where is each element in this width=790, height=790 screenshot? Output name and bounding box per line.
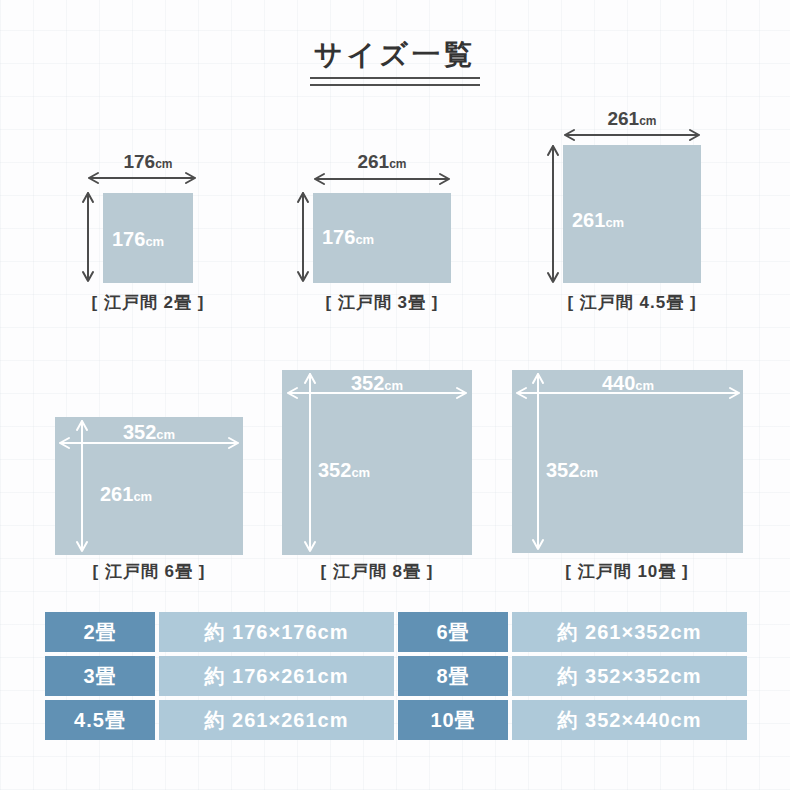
height-unit: cm [133, 489, 152, 504]
diagram-caption: [ 江戸間 8畳 ] [292, 560, 462, 583]
width-unit: cm [389, 157, 406, 171]
height-unit: cm [355, 232, 374, 247]
height-value: 261 [100, 483, 133, 505]
diagram-caption: [ 江戸間 6畳 ] [64, 560, 234, 583]
height-dimension-label: 176cm [112, 228, 164, 251]
table-row: 2畳 約 176×176cm 6畳 約 261×352cm [45, 612, 747, 652]
size-cell: 2畳 [45, 612, 155, 652]
width-unit: cm [635, 378, 654, 393]
width-dimension-label: 352cm [322, 372, 432, 395]
size-cell: 8畳 [398, 656, 508, 696]
vertical-arrow-icon [531, 372, 545, 551]
dimension-cell: 約 261×261cm [159, 700, 394, 740]
width-unit: cm [639, 114, 656, 128]
height-value: 176 [112, 228, 145, 250]
diagram-caption: [ 江戸間 3畳 ] [297, 291, 467, 314]
width-dimension-label: 352cm [94, 421, 204, 444]
size-cell: 10畳 [398, 700, 508, 740]
height-dimension-label: 261cm [100, 483, 152, 506]
page-title: サイズ一覧 [0, 36, 790, 74]
vertical-arrow-icon [546, 144, 560, 284]
diagram-caption: [ 江戸間 10畳 ] [542, 560, 712, 583]
size-chart-page: サイズ一覧 176cm 176cm [ 江戸間 2畳 ] 261cm 176cm… [0, 0, 790, 790]
vertical-arrow-icon [81, 191, 95, 283]
height-unit: cm [579, 465, 598, 480]
table-row: 4.5畳 約 261×261cm 10畳 約 352×440cm [45, 700, 747, 740]
diagram-caption: [ 江戸間 2畳 ] [63, 291, 233, 314]
horizontal-arrow-icon [563, 128, 701, 142]
height-unit: cm [351, 465, 370, 480]
width-unit: cm [156, 427, 175, 442]
table-row: 3畳 約 176×261cm 8畳 約 352×352cm [45, 656, 747, 696]
width-dimension-label: 261cm [327, 151, 437, 173]
title-double-underline [310, 77, 480, 86]
height-unit: cm [145, 234, 164, 249]
width-dimension-label: 176cm [93, 151, 203, 173]
size-cell: 6畳 [398, 612, 508, 652]
width-dimension-label: 261cm [577, 108, 687, 130]
width-value: 352 [123, 421, 156, 443]
dimension-cell: 約 352×440cm [512, 700, 747, 740]
width-unit: cm [384, 378, 403, 393]
horizontal-arrow-icon [87, 171, 197, 185]
width-value: 261 [357, 151, 389, 172]
width-value: 176 [123, 151, 155, 172]
dimension-cell: 約 352×352cm [512, 656, 747, 696]
height-dimension-label: 261cm [572, 209, 624, 232]
size-summary-table: 2畳 約 176×176cm 6畳 約 261×352cm 3畳 約 176×2… [45, 612, 747, 740]
dimension-cell: 約 176×176cm [159, 612, 394, 652]
height-value: 261 [572, 209, 605, 231]
height-dimension-label: 352cm [546, 459, 598, 482]
size-cell: 3畳 [45, 656, 155, 696]
width-unit: cm [155, 157, 172, 171]
height-value: 176 [322, 226, 355, 248]
size-cell: 4.5畳 [45, 700, 155, 740]
dimension-cell: 約 261×352cm [512, 612, 747, 652]
diagram-caption: [ 江戸間 4.5畳 ] [547, 291, 717, 314]
width-value: 352 [351, 372, 384, 394]
dimension-cell: 約 176×261cm [159, 656, 394, 696]
horizontal-arrow-icon [313, 172, 451, 186]
height-value: 352 [318, 459, 351, 481]
vertical-arrow-icon [303, 372, 317, 553]
width-dimension-label: 440cm [573, 372, 683, 395]
vertical-arrow-icon [75, 419, 89, 553]
height-value: 352 [546, 459, 579, 481]
height-dimension-label: 176cm [322, 226, 374, 249]
height-unit: cm [605, 215, 624, 230]
vertical-arrow-icon [296, 191, 310, 283]
width-value: 261 [607, 108, 639, 129]
width-value: 440 [602, 372, 635, 394]
height-dimension-label: 352cm [318, 459, 370, 482]
